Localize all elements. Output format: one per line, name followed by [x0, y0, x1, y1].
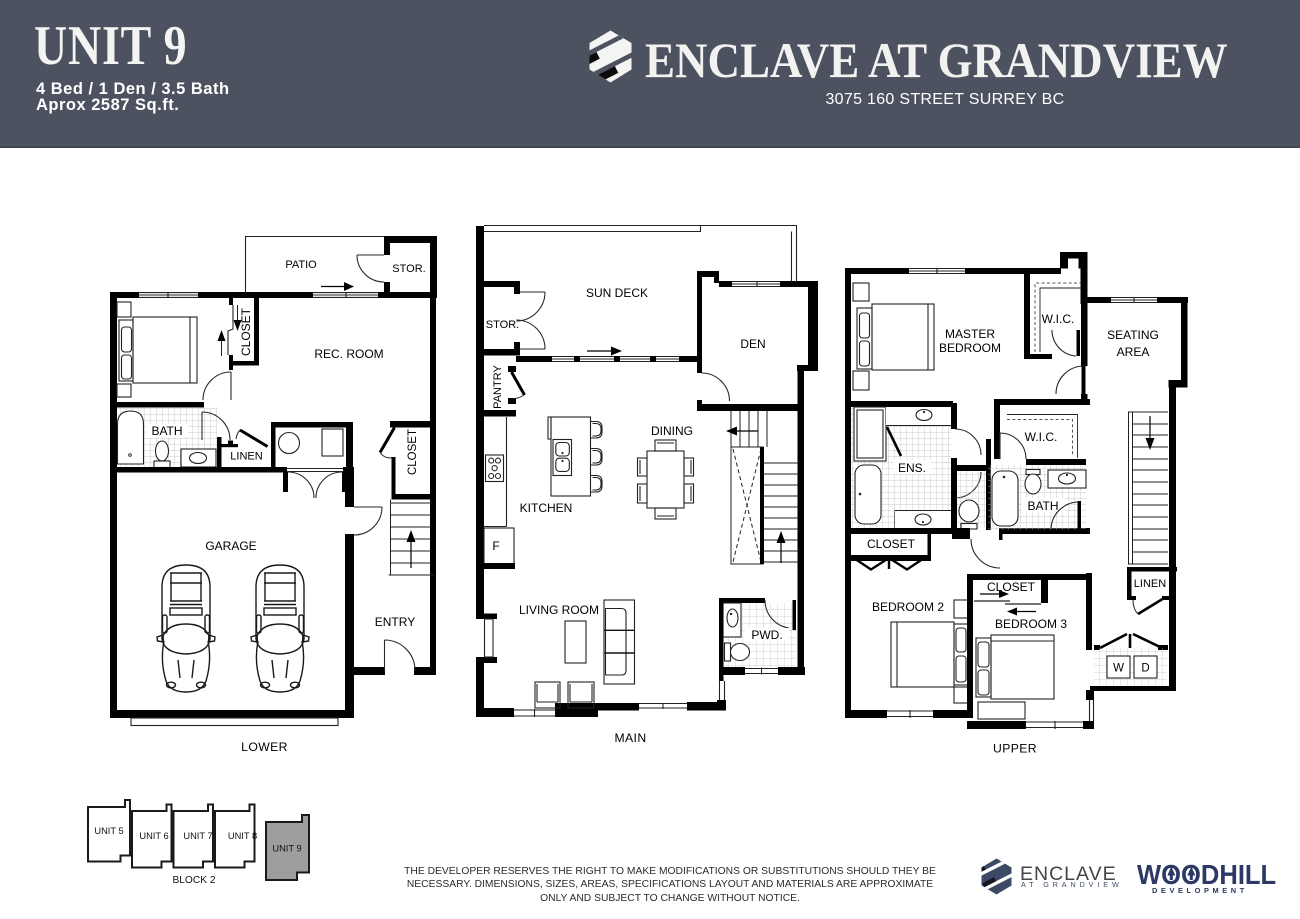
svg-text:F: F — [492, 539, 499, 553]
svg-text:STOR.: STOR. — [486, 319, 519, 331]
svg-text:LIVING ROOM: LIVING ROOM — [519, 603, 599, 617]
svg-text:ENTRY: ENTRY — [375, 615, 415, 629]
svg-text:UPPER: UPPER — [993, 742, 1037, 756]
svg-text:CLOSET: CLOSET — [407, 429, 419, 475]
svg-text:MASTER: MASTER — [945, 327, 995, 341]
svg-text:PWD.: PWD. — [751, 628, 782, 642]
svg-text:PANTRY: PANTRY — [492, 365, 504, 409]
svg-text:AT GRANDVIEW: AT GRANDVIEW — [1021, 880, 1123, 889]
svg-text:BATH: BATH — [1027, 499, 1058, 513]
svg-text:UNIT 7: UNIT 7 — [183, 831, 212, 841]
svg-text:W.I.C.: W.I.C. — [1025, 430, 1058, 444]
svg-text:UNIT 8: UNIT 8 — [228, 831, 257, 841]
svg-text:BEDROOM 3: BEDROOM 3 — [995, 617, 1067, 631]
svg-text:CLOSET: CLOSET — [867, 537, 916, 551]
svg-text:LINEN: LINEN — [1134, 578, 1166, 590]
svg-text:UNIT 9: UNIT 9 — [272, 844, 301, 854]
svg-text:REC. ROOM: REC. ROOM — [314, 347, 383, 361]
svg-text:DEN: DEN — [740, 337, 765, 351]
svg-text:CLOSET: CLOSET — [239, 307, 253, 356]
svg-text:UNIT 6: UNIT 6 — [139, 831, 168, 841]
svg-text:SEATING: SEATING — [1107, 328, 1159, 342]
svg-text:AREA: AREA — [1117, 345, 1150, 359]
svg-text:W: W — [1113, 663, 1124, 675]
svg-text:MAIN: MAIN — [614, 731, 646, 745]
svg-text:BATH: BATH — [151, 424, 182, 438]
svg-text:STOR.: STOR. — [392, 263, 425, 275]
svg-text:KITCHEN: KITCHEN — [520, 501, 573, 515]
svg-text:BEDROOM: BEDROOM — [939, 341, 1001, 355]
svg-text:CLOSET: CLOSET — [987, 580, 1036, 594]
svg-text:SUN DECK: SUN DECK — [586, 286, 648, 300]
svg-text:W.I.C.: W.I.C. — [1042, 312, 1075, 326]
svg-text:GARAGE: GARAGE — [205, 539, 256, 553]
svg-text:UNIT 5: UNIT 5 — [94, 826, 123, 836]
svg-text:DINING: DINING — [651, 424, 693, 438]
svg-text:ENS.: ENS. — [898, 461, 926, 475]
svg-text:PATIO: PATIO — [285, 259, 317, 271]
svg-text:LOWER: LOWER — [241, 740, 288, 754]
svg-text:BEDROOM 2: BEDROOM 2 — [872, 600, 944, 614]
svg-text:LINEN: LINEN — [230, 451, 262, 463]
svg-text:D: D — [1141, 663, 1149, 675]
svg-text:BLOCK 2: BLOCK 2 — [172, 875, 215, 886]
svg-text:DEVELOPMENT: DEVELOPMENT — [1152, 886, 1248, 895]
